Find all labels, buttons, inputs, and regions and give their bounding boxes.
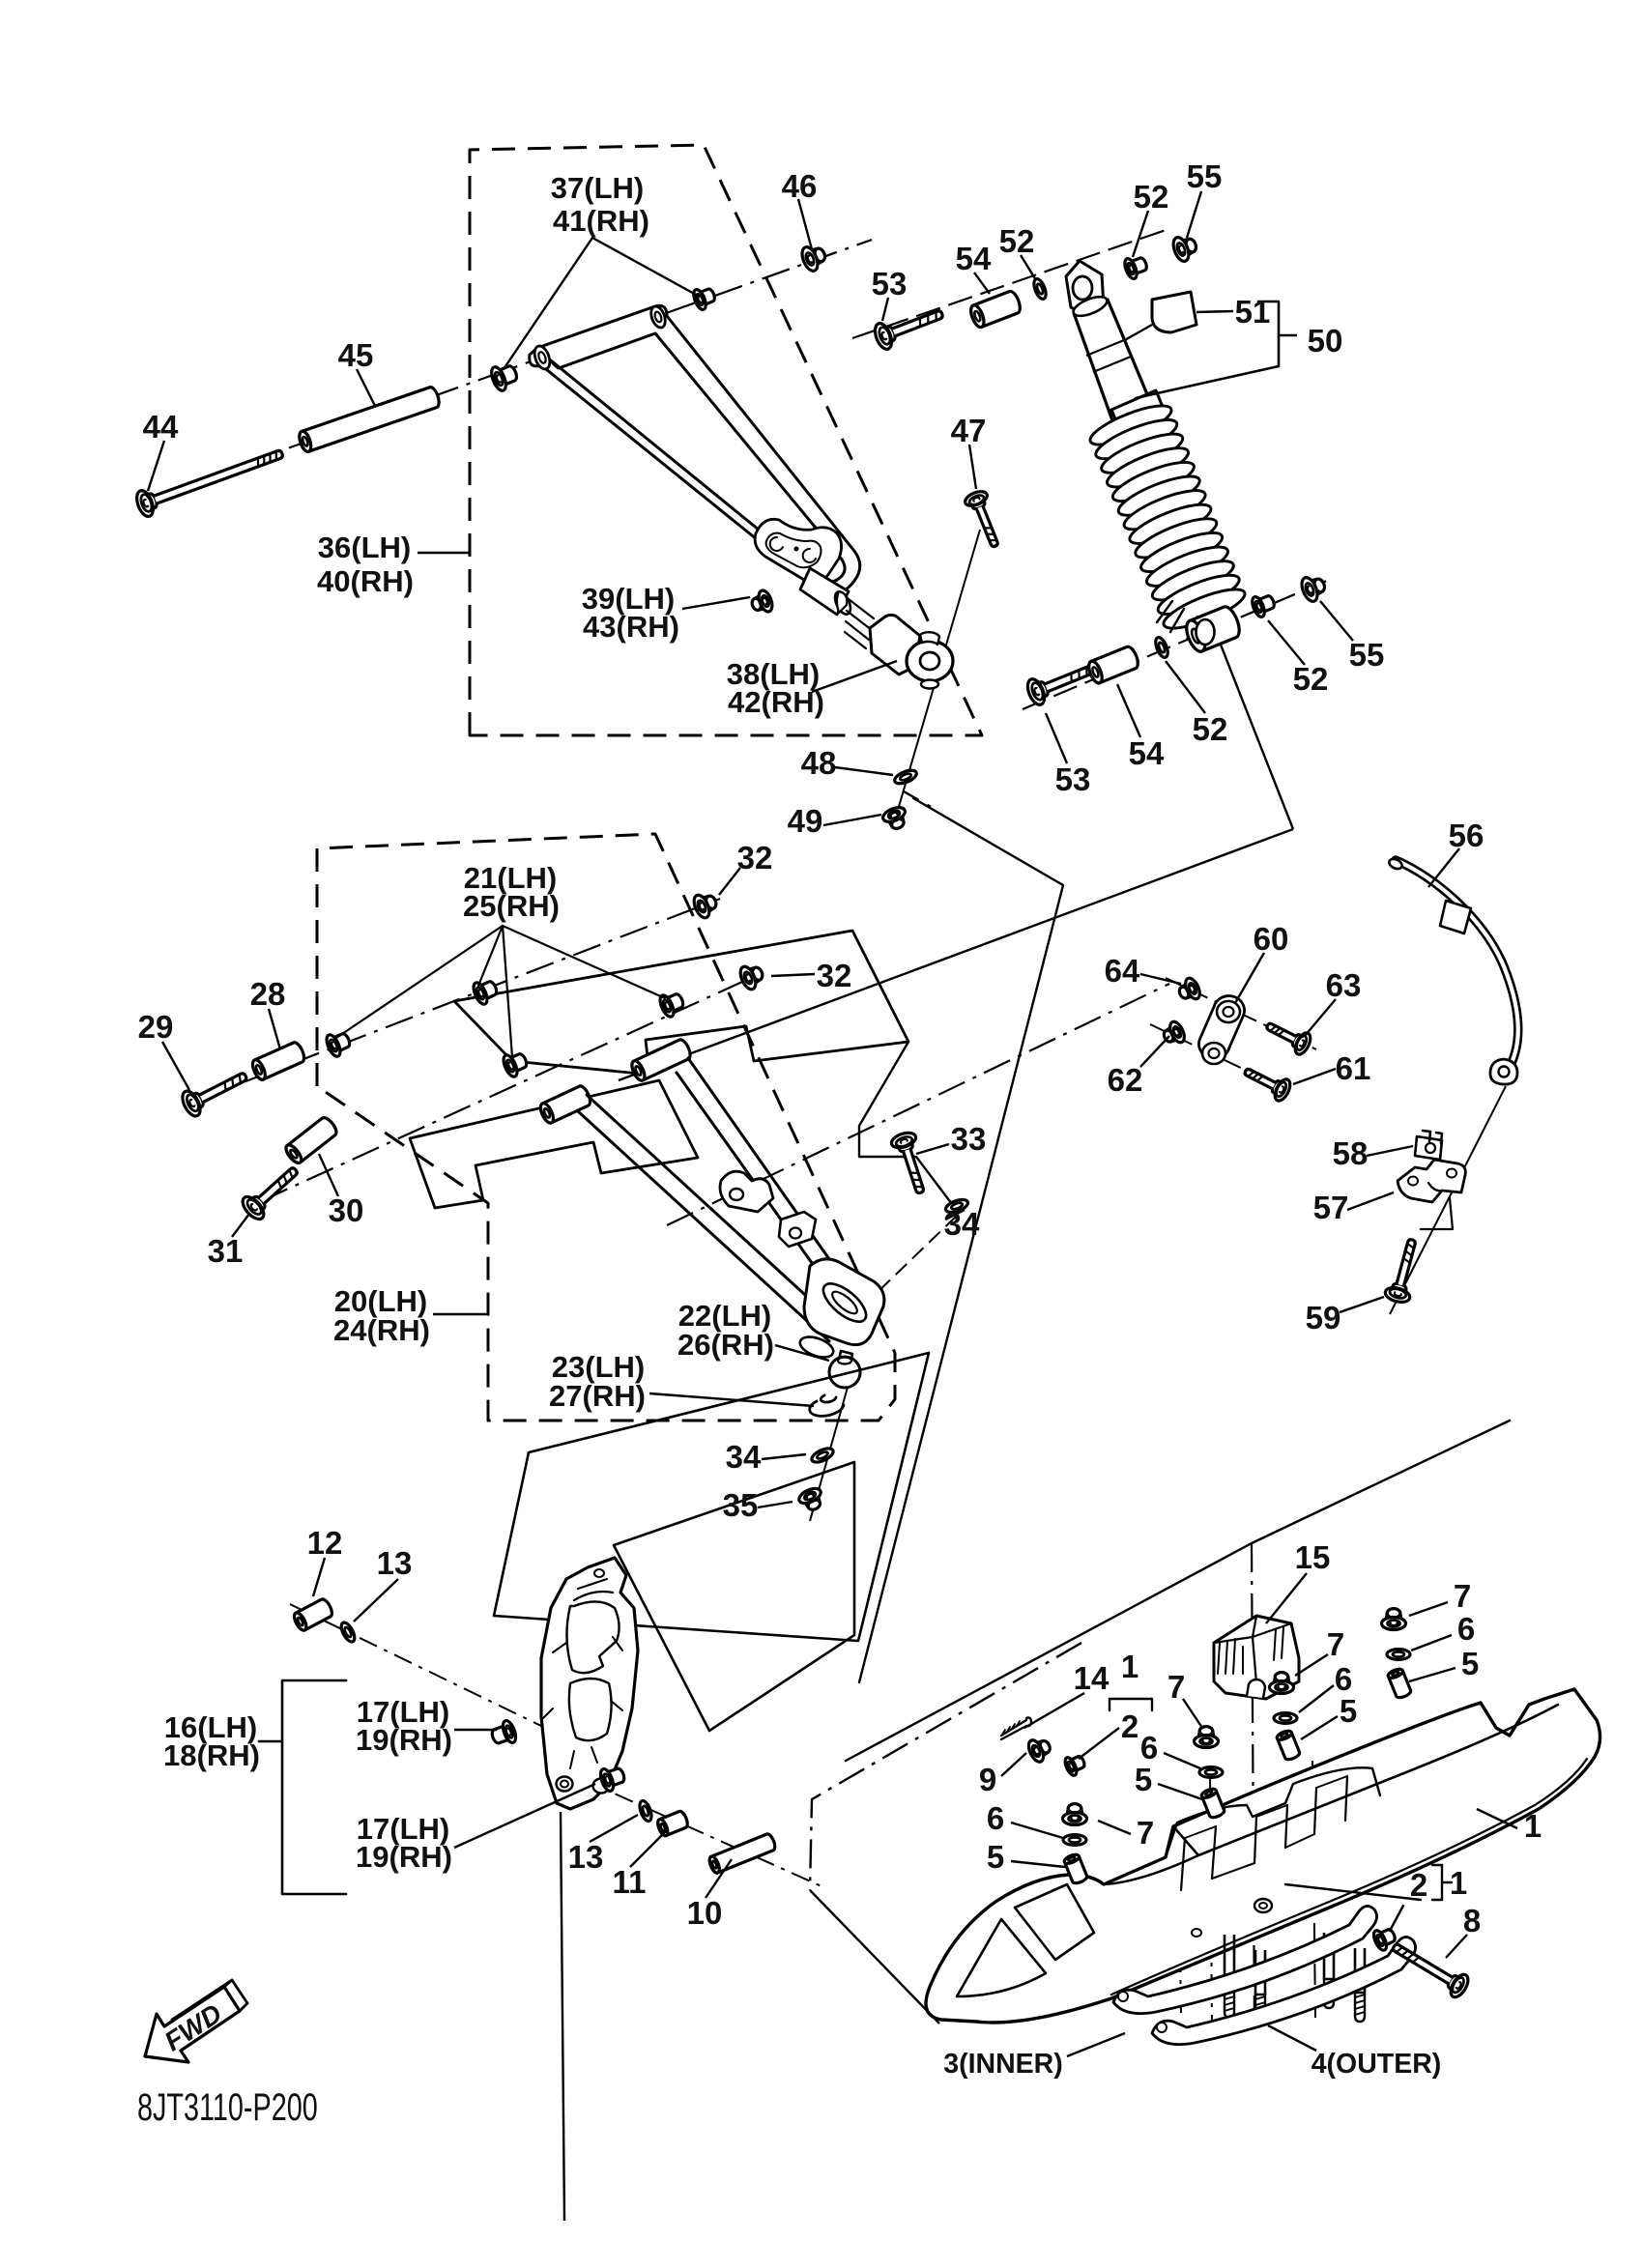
svg-text:53: 53 [872,266,908,301]
svg-text:40(RH): 40(RH) [317,564,414,598]
svg-text:52: 52 [1293,661,1329,697]
svg-text:7: 7 [1327,1626,1344,1662]
svg-text:44: 44 [143,409,179,445]
svg-text:13: 13 [377,1545,413,1581]
svg-text:33: 33 [951,1121,987,1157]
svg-text:7: 7 [1137,1815,1154,1851]
svg-text:35: 35 [723,1487,759,1523]
svg-text:18(RH): 18(RH) [163,1738,260,1772]
svg-text:8: 8 [1463,1903,1481,1938]
svg-text:6: 6 [987,1800,1004,1836]
svg-text:37(LH): 37(LH) [551,171,644,205]
svg-text:52: 52 [1193,711,1228,747]
svg-text:1: 1 [1450,1865,1467,1901]
svg-text:5: 5 [1461,1646,1479,1681]
svg-text:62: 62 [1108,1062,1143,1098]
svg-text:51: 51 [1235,294,1271,330]
svg-text:27(RH): 27(RH) [549,1379,646,1413]
svg-text:32: 32 [737,840,773,876]
svg-text:19(RH): 19(RH) [356,1840,452,1874]
svg-text:36(LH): 36(LH) [318,531,411,564]
svg-text:43(RH): 43(RH) [583,610,679,644]
svg-text:58: 58 [1333,1135,1369,1171]
svg-text:48: 48 [801,745,837,781]
svg-text:6: 6 [1335,1661,1352,1697]
svg-text:45: 45 [338,337,374,373]
svg-text:7: 7 [1167,1669,1185,1705]
svg-text:55: 55 [1187,158,1223,194]
svg-text:6: 6 [1140,1730,1158,1766]
svg-text:6: 6 [1457,1611,1475,1647]
svg-text:30: 30 [329,1192,364,1228]
svg-text:19(RH): 19(RH) [356,1723,452,1757]
svg-text:10: 10 [687,1895,723,1931]
svg-text:8JT3110-P200: 8JT3110-P200 [137,2085,318,2129]
svg-text:2: 2 [1410,1867,1427,1903]
svg-text:56: 56 [1449,818,1484,853]
svg-text:42(RH): 42(RH) [728,685,824,719]
svg-text:32: 32 [817,958,852,993]
svg-text:3(INNER): 3(INNER) [943,2049,1063,2080]
svg-text:14: 14 [1074,1660,1110,1696]
svg-text:53: 53 [1055,761,1091,797]
svg-text:7: 7 [1454,1578,1471,1614]
svg-text:57: 57 [1313,1190,1349,1225]
svg-text:34: 34 [726,1439,762,1475]
svg-text:9: 9 [979,1762,996,1797]
svg-text:31: 31 [208,1233,244,1269]
svg-text:50: 50 [1308,323,1343,359]
svg-text:47: 47 [951,413,987,448]
svg-text:52: 52 [1134,179,1169,215]
svg-text:64: 64 [1105,953,1140,989]
svg-text:54: 54 [956,241,992,276]
svg-text:1: 1 [1524,1808,1542,1844]
svg-text:49: 49 [788,803,823,839]
svg-text:61: 61 [1336,1050,1371,1086]
svg-text:41(RH): 41(RH) [553,204,649,238]
svg-text:63: 63 [1326,967,1362,1003]
svg-text:1: 1 [1121,1649,1139,1684]
svg-text:59: 59 [1306,1300,1341,1335]
svg-text:12: 12 [307,1525,343,1561]
svg-text:5: 5 [1135,1762,1152,1797]
svg-text:2: 2 [1121,1708,1139,1744]
svg-text:55: 55 [1349,637,1385,673]
svg-text:26(RH): 26(RH) [677,1328,774,1362]
svg-text:60: 60 [1254,921,1289,957]
svg-text:34: 34 [944,1206,980,1242]
svg-text:25(RH): 25(RH) [463,889,560,923]
svg-text:54: 54 [1129,735,1165,771]
svg-text:13: 13 [568,1839,604,1875]
svg-text:24(RH): 24(RH) [333,1313,430,1347]
svg-text:52: 52 [999,223,1035,259]
svg-text:15: 15 [1295,1539,1331,1575]
svg-text:46: 46 [782,168,818,204]
svg-text:28: 28 [250,976,286,1012]
svg-text:5: 5 [1340,1693,1357,1729]
svg-text:4(OUTER): 4(OUTER) [1312,2049,1442,2080]
svg-text:11: 11 [613,1864,647,1900]
svg-text:29: 29 [138,1009,174,1045]
svg-text:5: 5 [987,1839,1004,1875]
